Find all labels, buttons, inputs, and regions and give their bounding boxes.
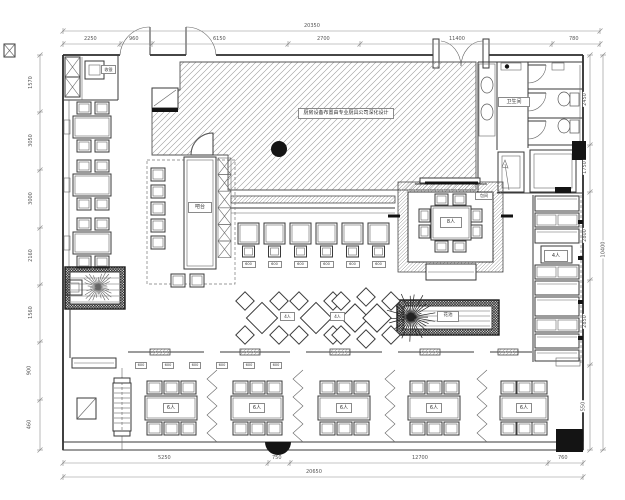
diamond-seat — [270, 292, 288, 310]
diamond-table-label: 4人 — [280, 312, 295, 321]
zigzag-screen — [385, 370, 395, 442]
bottom-table-label: 6人 — [426, 403, 442, 413]
dim-right: 2800 — [583, 228, 588, 243]
dim-right-total: 10400 — [601, 241, 606, 259]
diamond-seat — [363, 304, 391, 332]
seat-tag: 600 — [243, 362, 255, 369]
bar-label: 吧台 — [188, 202, 212, 213]
rail-post — [240, 349, 260, 355]
diamond-seat — [290, 326, 308, 344]
seat-tag: 600 — [270, 362, 282, 369]
stall-door — [528, 65, 546, 83]
bar-counter — [184, 157, 216, 269]
table-4 — [73, 232, 111, 254]
dim-left: 3000 — [29, 191, 34, 206]
pass-counter — [231, 196, 395, 203]
dim-left: 460 — [27, 419, 32, 431]
rail-post — [420, 349, 440, 355]
basin-counter — [479, 64, 495, 136]
dim-bottom: 760 — [557, 456, 569, 461]
seat-tag: 600 — [346, 261, 360, 268]
sink — [481, 77, 493, 93]
fixture — [501, 63, 521, 70]
diamond-seat — [246, 302, 277, 333]
diamond-seat — [236, 326, 254, 344]
booth-bench — [535, 281, 579, 295]
counter-table — [368, 223, 389, 244]
dim-top: 2700 — [316, 37, 331, 42]
counter-table — [264, 223, 285, 244]
dim-bottom: 750 — [271, 456, 283, 461]
counter-table — [290, 223, 311, 244]
seat-tag: 600 — [189, 362, 201, 369]
dim-bottom: 5250 — [157, 456, 172, 461]
diamond-table-label: 4人 — [330, 312, 345, 321]
private-room-tag: 包间 — [475, 192, 493, 200]
toilet — [558, 92, 570, 106]
dim-left: 3050 — [29, 133, 34, 148]
stall-door — [528, 121, 546, 139]
booth-bench — [535, 229, 579, 243]
counter-table — [316, 223, 337, 244]
column — [556, 429, 583, 452]
bottom-table-label: 6人 — [249, 403, 265, 413]
seat-tag: 600 — [135, 362, 147, 369]
dim-top: 2250 — [83, 37, 98, 42]
seat-tag: 600 — [320, 261, 334, 268]
door-leaf — [483, 39, 489, 68]
counter-table — [238, 223, 259, 244]
sink — [481, 104, 493, 120]
counter-table — [342, 223, 363, 244]
bottom-wall — [63, 442, 583, 450]
booth-bench — [535, 334, 579, 348]
plan-linework — [0, 0, 625, 500]
diamond-seat — [357, 288, 375, 306]
urinal — [552, 63, 564, 70]
table-4 — [73, 116, 111, 138]
seat-tag: 600 — [294, 261, 308, 268]
rail-post — [498, 349, 518, 355]
dim-bottom-total: 20650 — [305, 470, 323, 475]
toilet-tank — [570, 93, 579, 106]
column-half — [265, 442, 291, 455]
bottom-table-label: 6人 — [516, 403, 532, 413]
dim-right: 2450 — [583, 92, 588, 107]
diamond-seat — [290, 292, 308, 310]
zigzag-screen — [477, 370, 487, 442]
booth-bench — [535, 196, 579, 211]
lounge-sofa — [530, 150, 576, 192]
rail-post — [330, 349, 350, 355]
planter-label: 花池 — [437, 311, 459, 322]
seat-tag: 600 — [162, 362, 174, 369]
seat-tag: 600 — [216, 362, 228, 369]
dim-top: 11400 — [448, 37, 466, 42]
floor-plan: 厨房设备布置由专业厨具公司深化设计 吧台 卫生间 收银 包间 8人 4人 花池 … — [0, 0, 625, 500]
cashier-tag: 收银 — [101, 65, 116, 74]
seat-tag: 600 — [268, 261, 282, 268]
rail-post — [150, 349, 170, 355]
private-table-label: 8人 — [440, 217, 462, 228]
dim-left: 1560 — [29, 305, 34, 320]
zigzag-screen — [293, 370, 303, 442]
kitchen-note: 厨房设备布置由专业厨具公司深化设计 — [298, 108, 394, 119]
column — [572, 141, 586, 160]
dim-top: 960 — [128, 37, 140, 42]
bottom-table-label: 6人 — [336, 403, 352, 413]
booth-table-label: 4人 — [544, 250, 568, 262]
bottom-table-label: 6人 — [163, 403, 179, 413]
column — [271, 141, 287, 157]
dim-right: 550 — [581, 401, 586, 413]
dim-left: 1570 — [29, 75, 34, 90]
ledge — [555, 187, 571, 193]
diamond-seat — [300, 302, 331, 333]
zigzag-screen — [207, 370, 217, 442]
seat-tag: 600 — [372, 261, 386, 268]
dim-top: 780 — [568, 37, 580, 42]
dim-right: 2850 — [583, 314, 588, 329]
seat-tag: 600 — [242, 261, 256, 268]
diamond-seat — [236, 292, 254, 310]
diamond-seat — [357, 330, 375, 348]
toilet-tank — [570, 120, 579, 133]
stall-door — [528, 93, 546, 111]
dim-left: 900 — [27, 365, 32, 377]
dim-top: 6150 — [212, 37, 227, 42]
booth-bench — [535, 350, 579, 361]
dim-right: 1750 — [583, 160, 588, 175]
table-4 — [73, 174, 111, 196]
dim-bottom: 12700 — [411, 456, 429, 461]
diamond-seat — [270, 326, 288, 344]
toilet — [558, 119, 570, 133]
dim-left: 2160 — [29, 248, 34, 263]
dim-top-total: 20350 — [303, 24, 321, 29]
wc-label: 卫生间 — [498, 97, 530, 107]
